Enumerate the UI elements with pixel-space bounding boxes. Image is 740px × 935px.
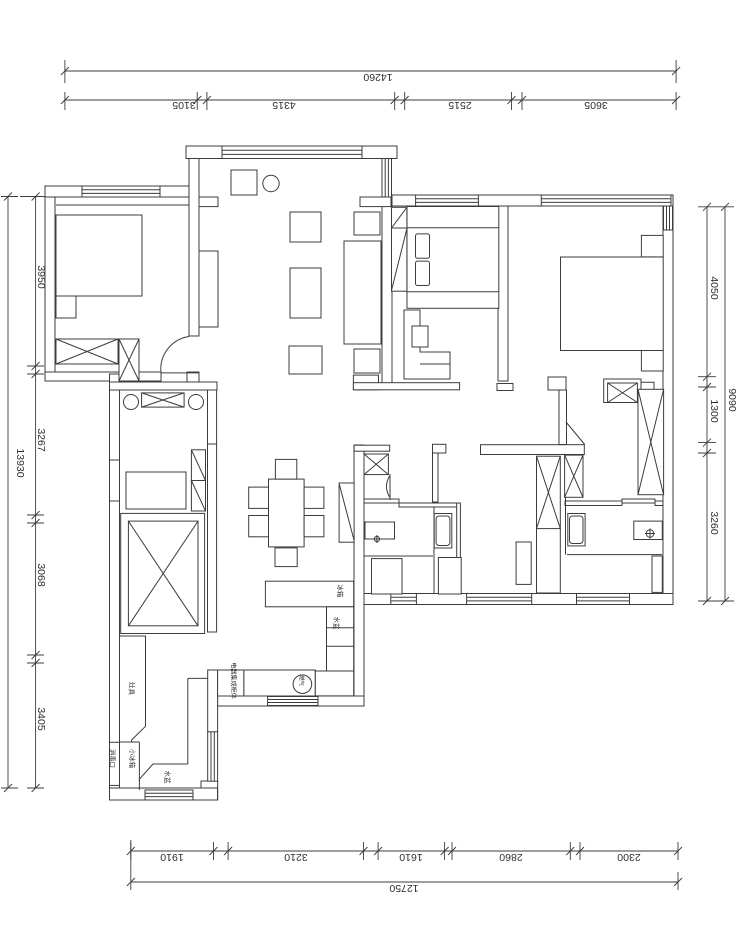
svg-text:13930: 13930 <box>14 448 26 477</box>
svg-text:4315: 4315 <box>272 99 296 111</box>
svg-text:消毒口: 消毒口 <box>109 749 118 768</box>
svg-text:2300: 2300 <box>617 851 641 863</box>
svg-text:3210: 3210 <box>284 851 308 863</box>
svg-text:水盆: 水盆 <box>164 771 173 785</box>
svg-text:3267: 3267 <box>35 428 47 452</box>
svg-text:3260: 3260 <box>708 511 720 535</box>
svg-text:1300: 1300 <box>708 399 720 423</box>
svg-text:小冰箱: 小冰箱 <box>128 749 137 769</box>
svg-text:1910: 1910 <box>160 851 184 863</box>
svg-text:水盆: 水盆 <box>333 617 342 631</box>
svg-text:9090: 9090 <box>726 388 738 412</box>
svg-text:冰箱: 冰箱 <box>336 585 345 599</box>
svg-text:3605: 3605 <box>584 99 608 111</box>
svg-text:4050: 4050 <box>708 276 720 300</box>
svg-text:2515: 2515 <box>448 99 472 111</box>
svg-text:2860: 2860 <box>499 851 523 863</box>
svg-text:燃气: 燃气 <box>298 675 306 687</box>
svg-text:12750: 12750 <box>389 882 418 894</box>
svg-text:1610: 1610 <box>399 851 423 863</box>
svg-text:3105: 3105 <box>172 99 196 111</box>
svg-text:14260: 14260 <box>363 71 392 83</box>
svg-text:3068: 3068 <box>35 563 47 587</box>
svg-text:电器集成柜体: 电器集成柜体 <box>230 662 238 699</box>
svg-text:3405: 3405 <box>35 707 47 731</box>
svg-text:灶具: 灶具 <box>128 682 137 696</box>
